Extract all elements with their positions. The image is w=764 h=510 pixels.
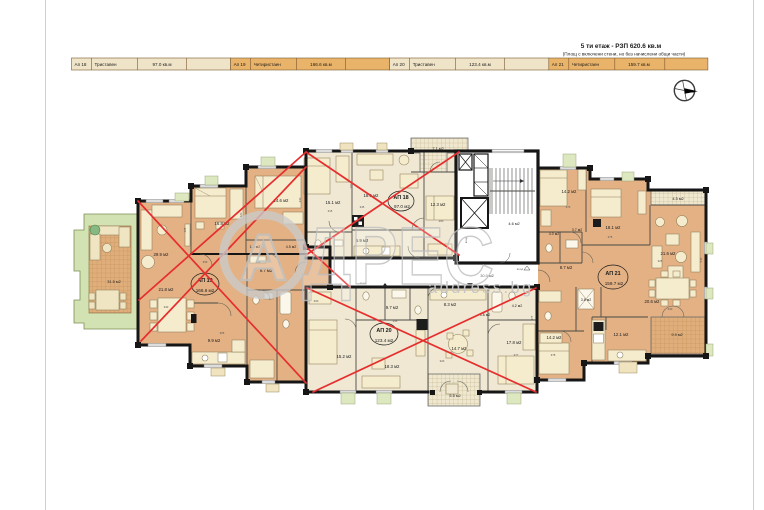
svg-text:345: 345 [393,319,398,323]
svg-text:166.6 кв.м: 166.6 кв.м [310,62,332,67]
svg-text:14.2 м2: 14.2 м2 [562,189,578,194]
svg-text:4.6 м2: 4.6 м2 [508,221,519,226]
svg-text:12.3 м2: 12.3 м2 [431,202,447,207]
svg-text:370: 370 [566,205,571,209]
svg-text:377: 377 [514,353,519,357]
svg-text:375: 375 [608,235,613,239]
svg-text:вход: вход [517,267,524,271]
svg-text:8.7 м2: 8.7 м2 [560,265,573,270]
svg-text:18.1 м2: 18.1 м2 [606,225,622,230]
svg-text:425: 425 [183,227,187,232]
svg-text:Ап 20: Ап 20 [393,62,405,67]
svg-text:166.6 м2: 166.6 м2 [196,288,215,293]
svg-text:21.6 м2: 21.6 м2 [661,251,677,256]
svg-text:А: А [240,220,288,294]
svg-text:345: 345 [360,205,365,209]
svg-text:12.1 м2: 12.1 м2 [614,332,630,337]
svg-text:29.9 м2: 29.9 м2 [154,252,170,257]
svg-text:Ап 21: Ап 21 [552,62,564,67]
svg-text:14.2 м2: 14.2 м2 [547,335,563,340]
svg-text:15.2 м2: 15.2 м2 [337,354,353,359]
svg-text:Триставен: Триставен [95,62,118,67]
svg-text:Четиристаен: Четиристаен [254,62,282,67]
svg-text:350: 350 [203,260,208,264]
svg-text:97.0 кв.м: 97.0 кв.м [152,62,171,67]
svg-text:Триставен: Триставен [413,62,436,67]
svg-text:АП 18: АП 18 [393,195,408,201]
svg-text:(Площ с включени стени, но без: (Площ с включени стени, но без начислени… [563,52,686,57]
svg-text:Ап 19: Ап 19 [234,62,246,67]
svg-text:15.1 м2: 15.1 м2 [326,200,342,205]
svg-text:3.7 м2: 3.7 м2 [572,228,582,232]
svg-text:21.8 м2: 21.8 м2 [159,287,175,292]
svg-text:17.8 м2: 17.8 м2 [507,340,523,345]
svg-text:378: 378 [551,353,556,357]
svg-text:4.2 м2: 4.2 м2 [512,304,522,308]
svg-text:330: 330 [668,307,673,311]
svg-text:330: 330 [164,305,169,309]
svg-text:АП 21: АП 21 [605,271,620,277]
svg-text:20.6 м2: 20.6 м2 [645,299,661,304]
svg-text:9.9 м2: 9.9 м2 [671,332,682,337]
svg-text:Четиристаен: Четиристаен [572,62,600,67]
svg-text:7.1 м2: 7.1 м2 [432,146,443,151]
svg-text:4.5 м2: 4.5 м2 [672,196,683,201]
svg-text:159.7 м2: 159.7 м2 [605,281,624,286]
svg-text:510: 510 [699,257,703,262]
svg-text:377: 377 [530,315,534,320]
svg-text:9.7 м2: 9.7 м2 [386,305,399,310]
svg-text:8.3 м2: 8.3 м2 [444,302,457,307]
svg-text:159.7 кв.м: 159.7 кв.м [628,62,650,67]
svg-text:97.0 м2: 97.0 м2 [394,204,410,209]
svg-text:325: 325 [658,259,663,263]
svg-text:430: 430 [298,197,302,202]
svg-text:14.7 м2: 14.7 м2 [452,346,468,351]
svg-text:5 ти етаж - РЗП 620.6 кв.м: 5 ти етаж - РЗП 620.6 кв.м [581,43,662,50]
svg-text:Ап 18: Ап 18 [75,62,87,67]
svg-text:31.5 м2: 31.5 м2 [107,279,121,284]
svg-text:123.4 м2: 123.4 м2 [375,338,394,343]
svg-text:4.0 м2: 4.0 м2 [549,232,559,236]
svg-text:address.bg: address.bg [428,279,534,297]
svg-text:320: 320 [440,359,445,363]
svg-text:5.5 м2: 5.5 м2 [449,393,460,398]
svg-text:АП 20: АП 20 [376,328,391,334]
svg-text:9.9 м2: 9.9 м2 [208,338,221,343]
svg-text:305: 305 [220,331,225,335]
svg-text:18.3 м2: 18.3 м2 [385,364,401,369]
svg-text:123.4 кв.м: 123.4 кв.м [469,62,491,67]
svg-text:3.8 м2: 3.8 м2 [581,298,591,302]
